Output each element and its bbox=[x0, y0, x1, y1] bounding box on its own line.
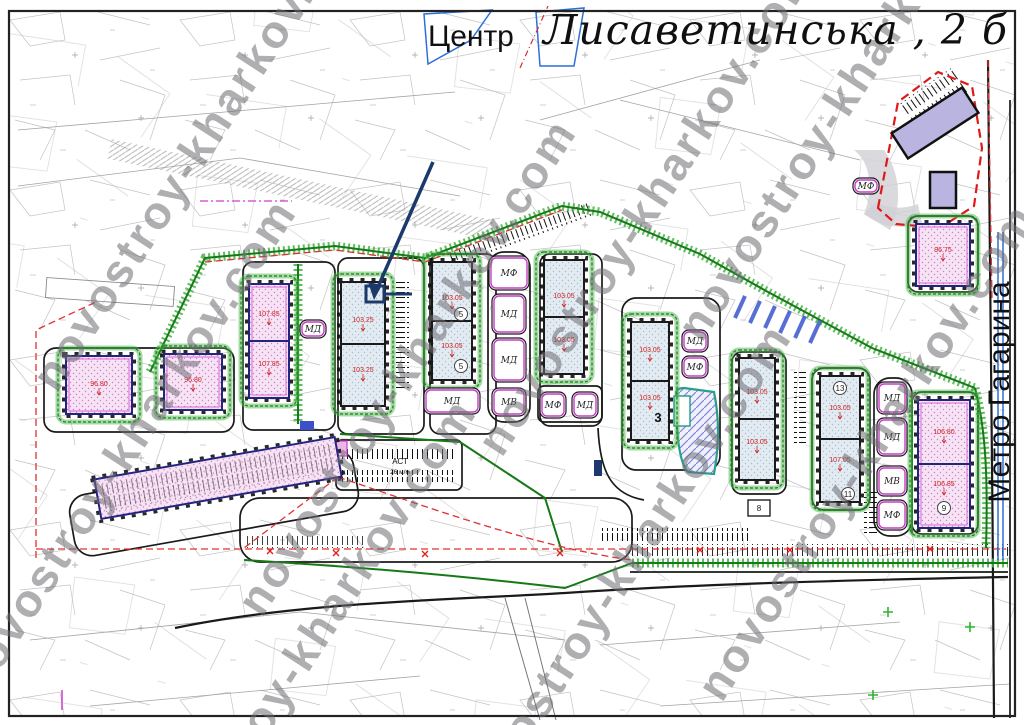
playground-МД-1: МД bbox=[492, 294, 526, 334]
svg-text:13: 13 bbox=[836, 384, 845, 393]
svg-text:107.85: 107.85 bbox=[258, 361, 280, 368]
svg-text:103.05: 103.05 bbox=[829, 405, 851, 412]
building-number: 3 bbox=[654, 410, 661, 425]
playground-label: МФ bbox=[857, 182, 875, 192]
circled-number-9: 9 bbox=[938, 502, 951, 515]
plan-title: Лисаветинська , 2 б bbox=[543, 6, 1008, 54]
svg-text:103.05: 103.05 bbox=[639, 347, 661, 354]
circled-number-5: 5 bbox=[455, 360, 468, 373]
annotation-text: 8 bbox=[757, 504, 762, 513]
building-b7: 3 bbox=[623, 314, 677, 448]
playground-label: МД bbox=[500, 310, 518, 320]
building-b13 bbox=[930, 172, 956, 208]
playground-label: МФ bbox=[686, 363, 704, 373]
playground-label: МД bbox=[304, 325, 322, 335]
svg-text:5: 5 bbox=[459, 362, 464, 371]
playground-label: МВ bbox=[883, 477, 900, 487]
svg-text:9: 9 bbox=[942, 504, 947, 513]
svg-text:107.85: 107.85 bbox=[258, 311, 280, 318]
svg-text:103.05: 103.05 bbox=[746, 439, 768, 446]
svg-text:106.80: 106.80 bbox=[933, 429, 955, 436]
metro-label: Метро Гагарина bbox=[983, 281, 1017, 502]
circled-number-13: 13 bbox=[834, 382, 847, 395]
playground-МД-14: МД bbox=[300, 320, 326, 338]
playground-МФ-12: МФ bbox=[877, 500, 907, 530]
svg-text:106.85: 106.85 bbox=[933, 481, 955, 488]
svg-text:103.05: 103.05 bbox=[639, 395, 661, 402]
center-label: Центр bbox=[428, 20, 514, 54]
playground-МФ-13: МФ bbox=[853, 178, 879, 194]
site-plan-map: 3 МФМДМДМВМДМФМДМДМФМДМДМВМФМФМД 96.8096… bbox=[0, 0, 1024, 725]
playground-МФ-8: МФ bbox=[682, 356, 708, 378]
svg-text:103.25: 103.25 bbox=[352, 317, 374, 324]
playground-МД-6: МД bbox=[572, 392, 598, 418]
playground-label: МФ bbox=[500, 269, 518, 279]
playground-label: МФ bbox=[883, 511, 901, 521]
playground-label: МД bbox=[576, 401, 594, 411]
svg-text:96.75: 96.75 bbox=[934, 247, 952, 254]
site-plan-page: 3 МФМДМДМВМДМФМДМДМФМДМДМВМФМФМД 96.8096… bbox=[0, 0, 1024, 725]
svg-text:96.80: 96.80 bbox=[90, 381, 108, 388]
